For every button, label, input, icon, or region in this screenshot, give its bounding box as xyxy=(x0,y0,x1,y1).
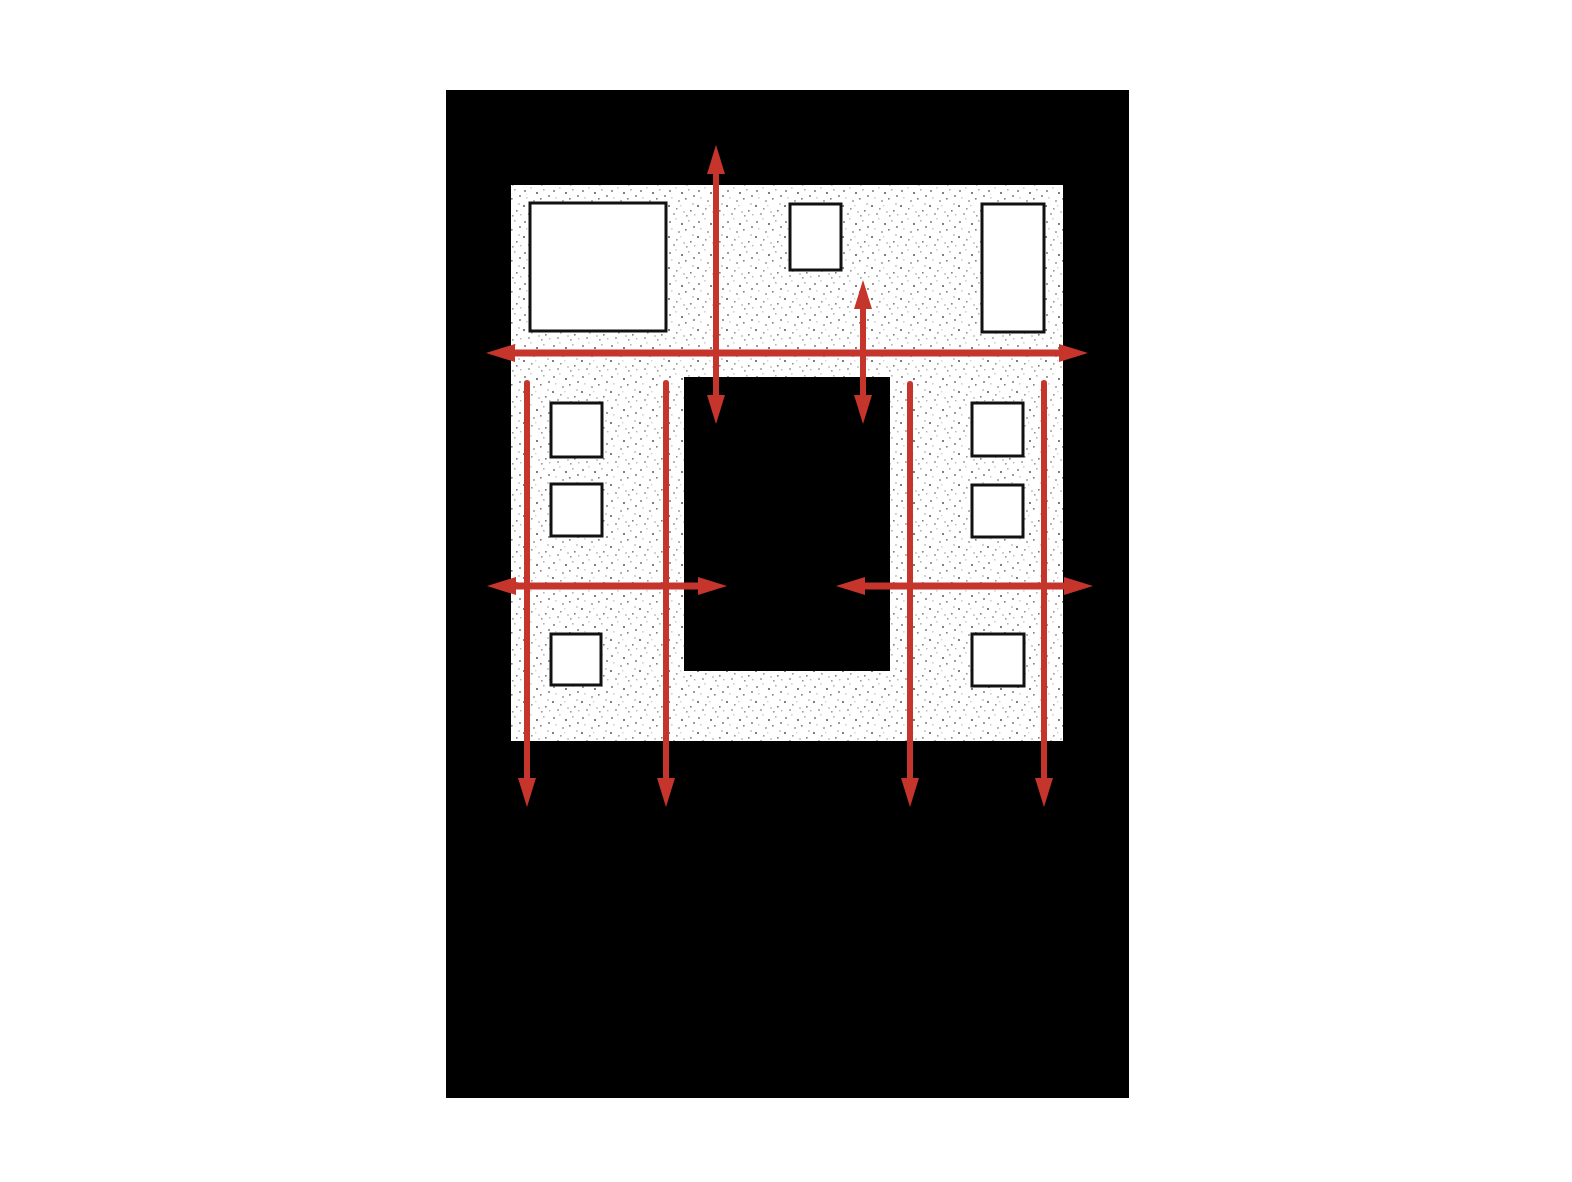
window-right-pier-bottom xyxy=(972,634,1024,686)
window-right-pier-middle xyxy=(972,485,1023,537)
building-elevation-load-path-diagram xyxy=(0,0,1572,1182)
window-left-pier-top xyxy=(551,403,602,457)
window-right-pier-top xyxy=(972,403,1023,456)
window-left-pier-bottom xyxy=(551,634,601,685)
window-left-pier-middle xyxy=(551,484,602,536)
window-upper-left-large xyxy=(530,203,666,331)
window-upper-right xyxy=(982,204,1044,332)
window-upper-middle xyxy=(790,204,841,270)
figure-page xyxy=(0,0,1572,1182)
